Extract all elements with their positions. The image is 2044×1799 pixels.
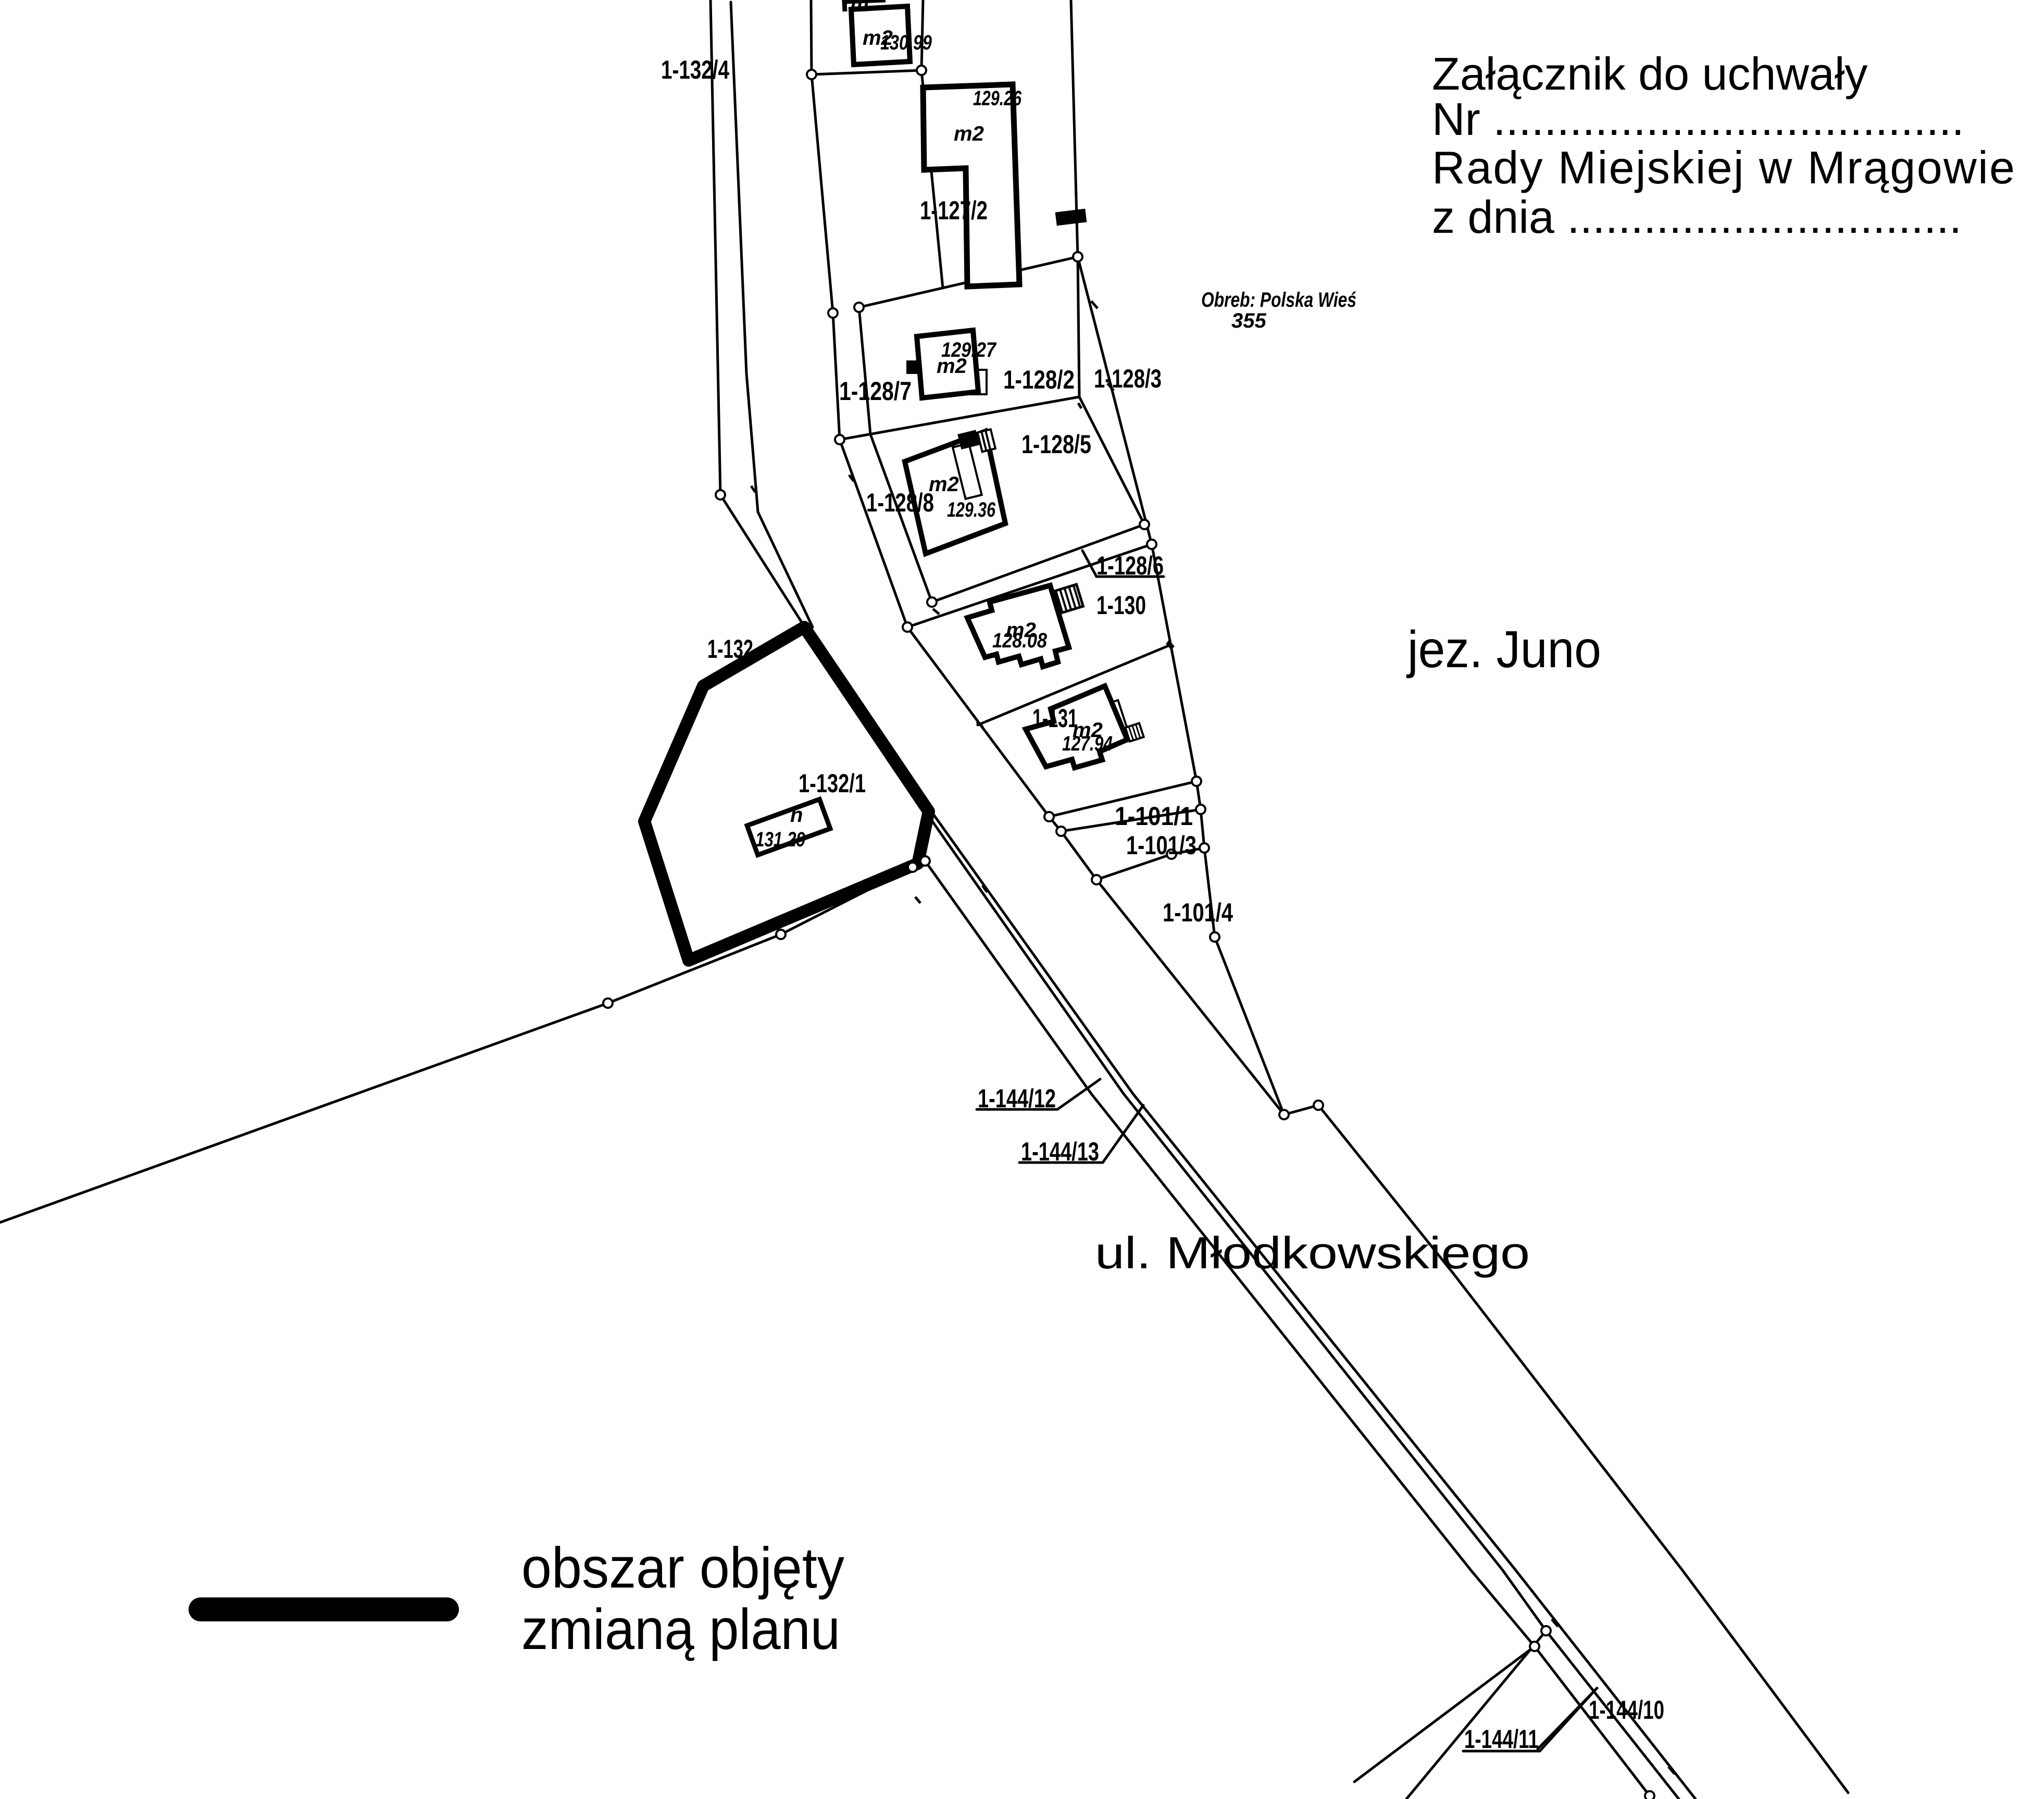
svg-text:129.26: 129.26 bbox=[973, 87, 1022, 110]
svg-text:h: h bbox=[790, 804, 803, 827]
svg-text:m2: m2 bbox=[929, 473, 959, 496]
svg-text:jez. Juno: jez. Juno bbox=[1406, 620, 1601, 679]
svg-text:127.94: 127.94 bbox=[1062, 732, 1113, 755]
svg-text:m: m bbox=[851, 0, 869, 14]
svg-text:ul. Młodkowskiego: ul. Młodkowskiego bbox=[1095, 1228, 1530, 1278]
svg-text:1-144/13: 1-144/13 bbox=[1021, 1137, 1099, 1166]
svg-text:1-132/1: 1-132/1 bbox=[799, 769, 866, 798]
svg-text:1-130: 1-130 bbox=[1096, 591, 1146, 620]
svg-text:1-101/1: 1-101/1 bbox=[1115, 802, 1193, 831]
svg-text:1-101/3: 1-101/3 bbox=[1126, 831, 1197, 860]
svg-text:zmianą planu: zmianą planu bbox=[521, 1597, 840, 1661]
svg-text:1-128/5: 1-128/5 bbox=[1021, 430, 1091, 459]
svg-text:Nr ...........................: Nr ..................................... bbox=[1432, 93, 1964, 145]
svg-text:obszar objęty: obszar objęty bbox=[521, 1536, 844, 1600]
svg-text:Załącznik do uchwały: Załącznik do uchwały bbox=[1432, 48, 1867, 99]
svg-text:1-131: 1-131 bbox=[1032, 704, 1078, 733]
svg-text:1-128/7: 1-128/7 bbox=[839, 377, 912, 406]
svg-text:1-144/11: 1-144/11 bbox=[1464, 1725, 1539, 1754]
svg-text:Rady Miejskiej w Mrągowie: Rady Miejskiej w Mrągowie bbox=[1432, 142, 2015, 193]
svg-text:355: 355 bbox=[1231, 309, 1266, 332]
svg-text:1-127/2: 1-127/2 bbox=[920, 196, 988, 225]
svg-text:Obreb: Polska Wieś: Obreb: Polska Wieś bbox=[1201, 289, 1356, 311]
svg-text:1-101/4: 1-101/4 bbox=[1163, 898, 1233, 927]
svg-text:1-132/4: 1-132/4 bbox=[661, 55, 729, 84]
svg-text:1-128/8: 1-128/8 bbox=[866, 488, 934, 517]
svg-text:128.08: 128.08 bbox=[992, 629, 1048, 652]
svg-text:129.36: 129.36 bbox=[947, 498, 996, 521]
svg-text:130.99: 130.99 bbox=[880, 31, 932, 54]
svg-text:1-128/3: 1-128/3 bbox=[1094, 364, 1162, 393]
svg-text:131.29: 131.29 bbox=[755, 828, 806, 851]
svg-text:m2: m2 bbox=[954, 122, 984, 145]
svg-text:z dnia .......................: z dnia ............................... bbox=[1432, 191, 1962, 243]
svg-text:m2: m2 bbox=[937, 355, 967, 378]
svg-text:1-132: 1-132 bbox=[707, 634, 753, 664]
svg-text:1-128/2: 1-128/2 bbox=[1003, 365, 1075, 394]
svg-text:1-144/10: 1-144/10 bbox=[1589, 1695, 1664, 1725]
svg-text:1-128/6: 1-128/6 bbox=[1096, 551, 1164, 580]
svg-text:1-144/12: 1-144/12 bbox=[978, 1084, 1056, 1113]
